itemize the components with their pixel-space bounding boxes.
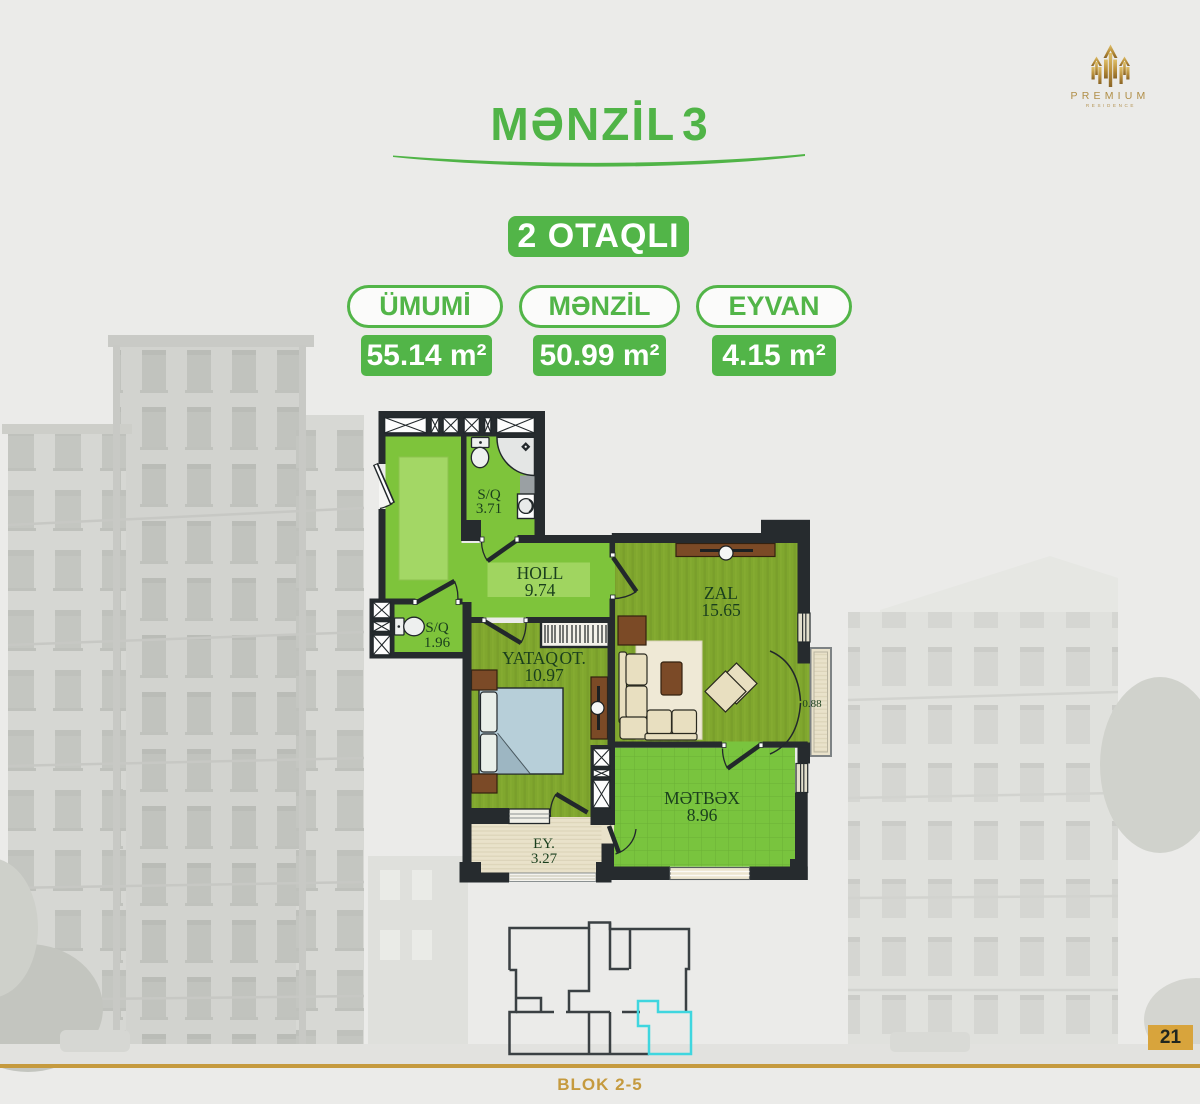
svg-text:S/Q: S/Q — [425, 620, 449, 636]
svg-text:9.74: 9.74 — [525, 580, 556, 600]
svg-text:1.96: 1.96 — [424, 635, 451, 651]
svg-text:8.96: 8.96 — [687, 805, 718, 825]
svg-text:3.71: 3.71 — [476, 501, 502, 517]
svg-text:EY.: EY. — [533, 836, 555, 852]
svg-text:10.97: 10.97 — [524, 665, 564, 685]
svg-text:0.88: 0.88 — [802, 698, 822, 710]
svg-text:15.65: 15.65 — [701, 600, 741, 620]
svg-text:3.27: 3.27 — [531, 851, 558, 867]
